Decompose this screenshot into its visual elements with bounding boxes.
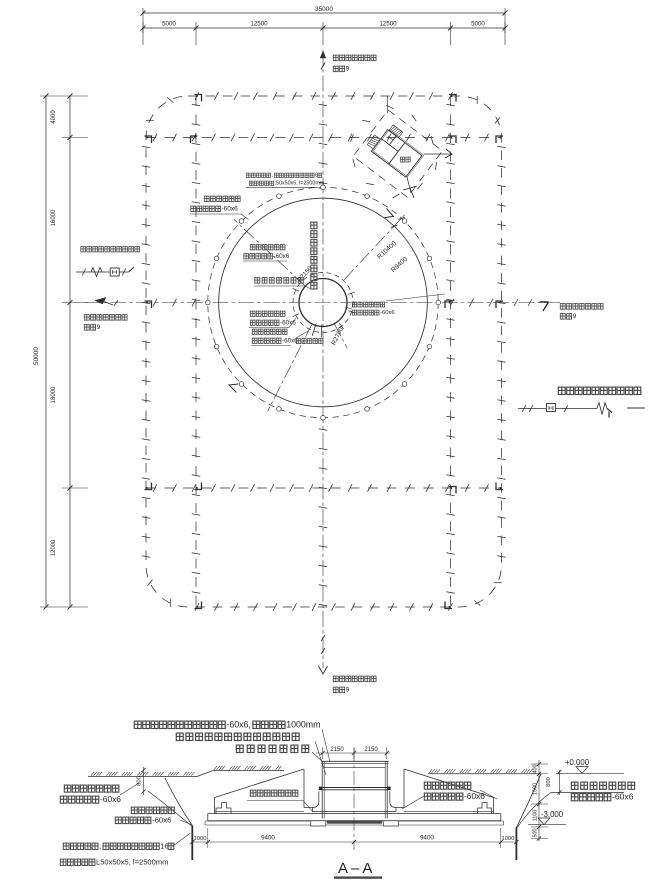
svg-text:18000: 18000 [51, 386, 57, 403]
svg-text:12500: 12500 [379, 21, 397, 28]
svg-text:400: 400 [533, 765, 539, 774]
svg-text:,: , [272, 173, 274, 179]
svg-text:5000: 5000 [471, 21, 485, 28]
svg-text:9: 9 [573, 313, 577, 320]
svg-text:-60x6: -60x6 [100, 794, 121, 804]
svg-text:,: , [99, 841, 101, 850]
svg-text:50000: 50000 [33, 347, 40, 365]
svg-text:9400: 9400 [261, 835, 275, 842]
svg-text:12500: 12500 [250, 21, 268, 28]
svg-text:9: 9 [346, 687, 350, 694]
svg-text:+0.000: +0.000 [565, 758, 590, 767]
svg-text:4000: 4000 [51, 110, 57, 124]
svg-text:-60x6,: -60x6, [226, 719, 251, 729]
svg-text:16: 16 [160, 841, 168, 850]
svg-text:-60x6: -60x6 [222, 206, 239, 213]
svg-text:A–A: A–A [338, 860, 375, 877]
svg-text:-60x6: -60x6 [152, 816, 171, 825]
svg-text:L50x50x5, l=2500mm: L50x50x5, l=2500mm [96, 857, 168, 866]
svg-text:2150: 2150 [364, 747, 378, 753]
svg-text:9400: 9400 [420, 835, 434, 842]
svg-text:-60x6: -60x6 [464, 791, 485, 801]
svg-text:-60x6: -60x6 [274, 253, 290, 260]
svg-text:-60x6: -60x6 [380, 310, 395, 316]
svg-text:1100: 1100 [533, 810, 539, 822]
svg-text:1000: 1000 [194, 836, 207, 842]
svg-text:500: 500 [533, 829, 539, 838]
svg-text:16000: 16000 [51, 209, 57, 226]
svg-text:-60x6: -60x6 [280, 319, 296, 326]
svg-text:,50x50x5, l=2500mm: ,50x50x5, l=2500mm [275, 181, 325, 187]
svg-text:800: 800 [546, 777, 552, 787]
svg-text:-60x6: -60x6 [612, 792, 634, 802]
svg-text:9: 9 [97, 324, 101, 331]
svg-text:9: 9 [346, 66, 350, 73]
svg-text:5000: 5000 [162, 21, 176, 28]
svg-text:800: 800 [137, 776, 143, 786]
svg-text:1000: 1000 [502, 836, 515, 842]
svg-text:35000: 35000 [315, 6, 333, 13]
svg-text:1500: 1500 [533, 783, 539, 795]
svg-text:1000mm: 1000mm [286, 719, 320, 729]
svg-text:2150: 2150 [330, 747, 344, 753]
svg-text:-60x6: -60x6 [282, 337, 298, 344]
svg-text:12000: 12000 [51, 539, 57, 556]
